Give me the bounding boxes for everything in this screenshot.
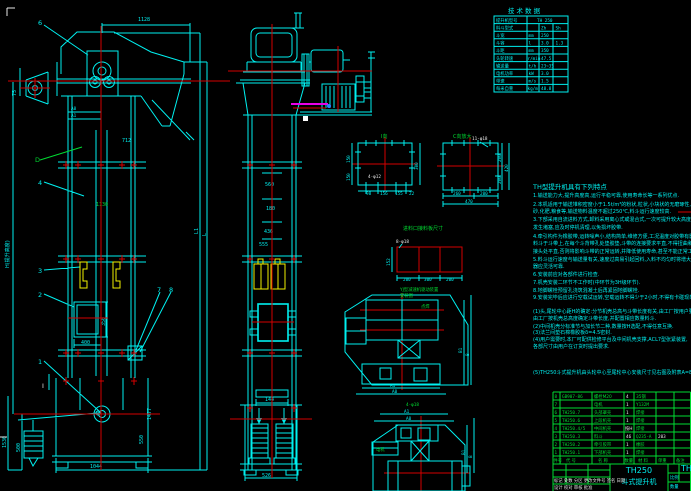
spec-label: 输送量 <box>496 63 510 70</box>
bom-qty: 按H <box>625 425 633 432</box>
bom-mat: 焊接 <box>636 425 645 432</box>
bom-qty: 46 <box>626 434 632 440</box>
bom-header: 材 料 <box>638 457 649 464</box>
grip-point[interactable] <box>303 116 308 121</box>
bom-code: TH250.2 <box>562 442 581 448</box>
bom-qty: 4 <box>626 394 629 400</box>
cad-canvas[interactable]: 6 4 3 2 1 7 8 1128 712 75 H(提升高度) 1130 A… <box>0 0 691 491</box>
callout-2: 2 <box>38 291 42 299</box>
spec-label: 斗距 <box>496 48 505 54</box>
detail-drive-top: YJ型减速机驱动装置 安装图 点焊 A1 A0 B1 B <box>345 286 471 395</box>
shaft-end-dot <box>327 104 331 108</box>
spec-value: 350 <box>541 48 549 54</box>
detail-c-view: C向放大 11-φ18 200 200 420 260 200 470 <box>440 133 510 207</box>
drive-top-title-1: YJ型减速机驱动装置 <box>399 286 439 293</box>
note-line: 9.安装完毕后应进行空载试运转,空载运转不得少于2小时,不得有卡碰现象,轴承温升… <box>533 294 691 301</box>
bom-mat: Q235-A <box>636 434 652 440</box>
bom-code: GB907-86 <box>562 394 583 400</box>
note-line: 2.本机适用于输送堆积密度小于1.5t/m³的粉状,粒状,小块状的无磨琢性,半磨… <box>533 201 691 208</box>
dim-712: 712 <box>122 138 131 144</box>
bom-header: 代 号 <box>566 457 576 464</box>
detail-i-note: 4-φ12 <box>368 174 381 180</box>
spec-unit: kW <box>529 71 535 77</box>
bom-name: 上段机壳 <box>594 417 612 424</box>
callout-1: 1 <box>38 358 42 366</box>
front-view: 6 4 3 2 1 7 8 1128 712 75 H(提升高度) 1130 A… <box>2 17 208 473</box>
spec-value: 3.0 <box>541 41 549 47</box>
note-line: 8.地脚螺栓预留孔浇筑混凝土后再紧固地脚螺栓. <box>533 287 640 294</box>
drive-top-title-2: 安装图 <box>400 292 413 299</box>
feed-grid <box>397 247 462 272</box>
spec-label: 斗宽 <box>496 32 505 39</box>
side-view-geometry <box>236 13 375 481</box>
bom-header: 件号 <box>554 457 563 464</box>
spec-label: 料斗型式 <box>496 25 514 32</box>
bom-name: 下部机壳 <box>594 449 612 456</box>
dim-526: 526 <box>262 473 271 479</box>
spec-label: 带速 <box>496 79 505 85</box>
feed-dims <box>392 244 462 281</box>
spec-label: 斗容 <box>496 40 505 47</box>
feed-dim: 200 <box>446 277 454 283</box>
spec-unit: kg/m <box>528 86 539 92</box>
leader-d <box>40 147 82 160</box>
dim-75: 75 <box>12 90 18 96</box>
side-view: 560 180 436 555 144 526 <box>236 13 375 481</box>
spec-table-title: 技 术 数 据 <box>508 6 541 15</box>
spec-value: 3.0 <box>541 71 549 77</box>
bom-name: 牵引胶带 <box>594 441 612 448</box>
detail-c-dim: 200 <box>497 176 503 184</box>
note-line: (3)法兰间垫石棉橡胶板δ=4.5密封. <box>533 329 612 336</box>
title-model: TH250 <box>625 466 652 475</box>
bom-qty: 1 <box>626 410 629 416</box>
feed-dim: 300 <box>424 277 432 283</box>
bom-header: 备注 <box>676 457 685 464</box>
title-product: 斗式提升机 <box>622 477 657 486</box>
detail-c-dim: 260 <box>453 191 461 197</box>
note-line: 由工厂按机壳总高度确定斗带长度,并配置相应数量料斗. <box>533 315 657 322</box>
detail-i-dim: 22 <box>409 191 415 197</box>
bom-qty: 1 <box>626 442 629 448</box>
detail-c-label: C向放大 <box>453 133 472 140</box>
spec-unit: l <box>529 41 532 47</box>
bom-no: 7 <box>555 402 558 408</box>
callout-8: 8 <box>169 286 173 294</box>
detail-c-dim: 420 <box>504 164 510 172</box>
detail-c-geometry <box>440 140 509 207</box>
title-model-right: TH250 <box>680 464 691 473</box>
notes-title: TH型提升机具有下列特点 <box>532 182 607 191</box>
dim-1130: 1130 <box>96 202 108 208</box>
note-line: (5)TH250斗式提升机由头轮中心至尾轮中心安装尺寸见右图及附表A=840. <box>533 369 691 376</box>
detail-i-dim: 150 <box>346 155 352 163</box>
note-line: 3.下部采用自流进料方式,卸料采用离心式或混合式,一次可提升较大高度,动力消耗小… <box>533 216 691 223</box>
front-view-geometry <box>8 23 207 473</box>
detail-i-dim: 98 <box>366 191 372 197</box>
dim-height-h: H(提升高度) <box>4 240 11 268</box>
spec-table: 技 术 数 据 提升机型号 TH 250 料斗型式 Zh Sh 斗宽 mm 25… <box>494 6 568 92</box>
detail-i-geometry <box>352 140 420 194</box>
note-line: 发生堵塞,应及时停机清理,以免损坏胶带. <box>533 224 623 231</box>
spec-value: 1.5 <box>541 79 549 85</box>
detail-i-view: I向 4-φ12 150 150 300 98 156 155 22 <box>346 133 420 197</box>
dim-180: 180 <box>266 206 275 212</box>
note-line: 1.输送能力大,提升高度高,运行平稳可靠,使用寿命长等一系列优点. <box>533 192 680 199</box>
bom-no: 3 <box>555 434 558 440</box>
drive-top-dim-b: B <box>465 353 471 356</box>
axis-l1: L1 <box>194 228 200 234</box>
spec-value: 250 <box>541 33 549 39</box>
note-line: 7.机壳安装二环节不工作时(中环节为3H级环节). <box>533 279 641 286</box>
note-line: 砂,化肥,粮食等,输送物料温度不超过250℃,料斗运行速度较高. <box>533 208 672 215</box>
detail-c-note: 11-φ18 <box>472 136 488 142</box>
bom-header: 名 称 <box>598 457 609 464</box>
label-a1: A1 <box>71 113 77 119</box>
bom-name: 电机 <box>594 401 603 408</box>
detail-i-dim: 155 <box>395 191 403 197</box>
head-hood-inner <box>256 33 292 57</box>
dim-144: 144 <box>265 397 274 403</box>
dim-1128: 1128 <box>138 17 150 23</box>
drive-bottom-geometry <box>372 414 474 491</box>
bom-name: 螺栓M20 <box>594 393 612 400</box>
bom-no: 4 <box>555 426 558 432</box>
spec-value: 23~35 <box>541 64 554 70</box>
bom-no: 8 <box>555 394 558 400</box>
spec-value: Sh <box>556 26 562 32</box>
feed-dim: 200 <box>403 277 411 283</box>
bucket-front-left <box>80 262 87 288</box>
bom-code: TH250.4/5 <box>562 426 586 432</box>
bom-name: 中间机壳 <box>594 425 612 432</box>
callout-7: 7 <box>157 286 161 294</box>
note-line: 5.料斗运行速度与输送量有关,速度过高易引起回料,入料不均匀时将增大功率消耗,逆… <box>533 256 691 263</box>
dim-550: 550 <box>139 435 145 444</box>
note-line: 器应灵活可靠. <box>533 263 565 270</box>
spec-value: 47.5 <box>541 56 552 62</box>
feed-title: 进料口接料板尺寸 <box>403 225 443 232</box>
drive-top-dim-a1: A1 <box>390 383 396 389</box>
bom-header: 数量 <box>625 457 634 464</box>
spec-value: 1.3 <box>556 41 564 47</box>
note-line: 各部尺寸由用户在订货时提出要求. <box>533 343 610 350</box>
callout-6: 6 <box>38 19 42 27</box>
spec-value: TH 250 <box>537 18 553 24</box>
note-line: 料斗于斗带上,在每个斗背带孔处垫胶垫,斗带的连接要求平直,不得扭曲和起鼓, <box>533 240 691 247</box>
spec-label: 头轮转速 <box>496 55 514 62</box>
dim-555: 555 <box>259 242 268 248</box>
spec-unit: mm <box>529 49 535 54</box>
feed-note: 8-φ18 <box>396 239 409 245</box>
bom-mat: Y132M <box>636 402 649 408</box>
detail-i-dim: 150 <box>346 173 352 181</box>
detail-feed-opening: 进料口接料板尺寸 8-φ18 152 200 300 200 <box>386 225 462 283</box>
title-scale-label: 比例 <box>670 474 679 481</box>
title-rev-line: 标记 处数 分区 更改文件号 签名 日期 <box>554 477 625 484</box>
bom-name: 头部罩壳 <box>594 409 612 416</box>
spec-unit: t/h <box>529 64 537 70</box>
detail-drive-bottom: A1 A0 电机 4-φ18 B1 B <box>372 402 474 491</box>
bom-mat: 橡胶 <box>636 441 645 448</box>
cad-drawing: 6 4 3 2 1 7 8 1128 712 75 H(提升高度) 1130 A… <box>0 0 691 491</box>
bom-no: 2 <box>555 442 558 448</box>
callout-4: 4 <box>38 179 42 187</box>
bom-weight: 203 <box>658 434 666 440</box>
drive-bottom-dim-a1: A1 <box>404 409 410 415</box>
dim-1044: 1044 <box>90 464 102 470</box>
bom-no: 6 <box>555 410 558 416</box>
detail-i-dim: 300 <box>414 162 420 170</box>
dim-500: 500 <box>16 443 22 452</box>
label-a0: A0 <box>71 106 77 112</box>
bucket-side-pair <box>254 259 285 289</box>
dim-1530: 1530 <box>2 436 8 448</box>
detail-c-dim: 200 <box>480 191 488 197</box>
bom-mat: 焊接 <box>636 449 645 456</box>
spec-label: 每米自重 <box>496 85 514 92</box>
drive-top-weld: 点焊 <box>421 303 430 310</box>
detail-i-dim: 156 <box>380 191 388 197</box>
bucket-front-right <box>113 262 120 288</box>
spec-label: 提升机型号 <box>496 17 517 24</box>
spec-unit: mm <box>529 34 535 39</box>
axis-l: L <box>202 233 208 236</box>
bom-name: 料斗 <box>594 433 603 440</box>
drive-top-dim-b1: B1 <box>458 347 464 353</box>
drive-bottom-motor-label: 电机 <box>376 446 385 453</box>
spec-unit: m/s <box>529 79 537 85</box>
note-line: (4)用户需要时,本厂可配供检修平台及中间机壳支撑,ACL7型张紧装置, <box>533 336 688 343</box>
detail-i-label: I向 <box>381 133 387 140</box>
drive-bottom-dim-a0: A0 <box>406 416 412 422</box>
drive-bottom-dim-b: B <box>468 455 474 458</box>
dim-560: 560 <box>265 182 274 188</box>
detail-c-dim: 200 <box>497 154 503 162</box>
bom-qty: 1 <box>626 450 629 456</box>
spec-label: 电机功率 <box>496 70 514 77</box>
bom-code: TH250.7 <box>562 410 581 416</box>
feed-dim: 152 <box>386 258 392 266</box>
drive-top-dim-a0: A0 <box>392 389 398 395</box>
detail-c-dim: 470 <box>465 199 473 205</box>
spec-value: 48.8 <box>541 86 552 92</box>
bom-header: 单重 <box>658 457 667 464</box>
bom-qty: 1 <box>626 418 629 424</box>
feature-notes: TH型提升机具有下列特点 1.输送能力大,提升高度高,运行平稳可靠,使用寿命长等… <box>532 182 691 376</box>
bom-no: 1 <box>555 450 558 456</box>
note-line: 6.安装前应对各部件进行检查. <box>533 271 600 278</box>
bom-qty: 1 <box>626 402 629 408</box>
callout-3: 3 <box>38 267 42 275</box>
dim-400: 400 <box>81 340 90 346</box>
bom-mat: 焊接 <box>636 409 645 416</box>
note-line: (2)中间机壳分标准节与加长节二种,数量按H选配,不得任意互换. <box>533 323 674 330</box>
bom-mat: 焊接 <box>636 417 645 424</box>
drive-bottom-hole-note: 4-φ18 <box>406 402 419 408</box>
spec-value: Zh <box>541 26 547 32</box>
bom-code: TH250.6 <box>562 418 581 424</box>
section-mark-i: I <box>42 382 44 390</box>
drive-bottom-dim-b1: B1 <box>461 449 467 455</box>
note-line: 4.牵引构件为橡胶带,运转噪声小,结构简单,维修方便,工况温度对胶带有影响,安装 <box>533 233 691 240</box>
title-qty-label: 数量 <box>670 483 679 490</box>
label-d: D <box>35 156 40 164</box>
bom-code: TH250.1 <box>562 450 581 456</box>
bom-no: 5 <box>555 418 558 424</box>
note-line: 接头处平直,否则将影响斗带的正常运转,并降低使用寿命,甚至不能正常工作. <box>533 248 691 255</box>
bom-mat: 35钢 <box>636 393 646 400</box>
bom-code: TH250.3 <box>562 434 581 440</box>
title-block: TH250 斗式提升机 TH250 比例 数量 标记 处数 分区 更改文件号 签… <box>553 464 691 491</box>
note-line: (1)头,尾轮中心距H的确定:分节机壳总高与斗带长度有关,由工厂按用户要求配置, <box>533 308 691 315</box>
spec-unit: r/min <box>528 56 541 62</box>
title-sign-line: 设计 校对 审核 批准 <box>554 484 593 491</box>
